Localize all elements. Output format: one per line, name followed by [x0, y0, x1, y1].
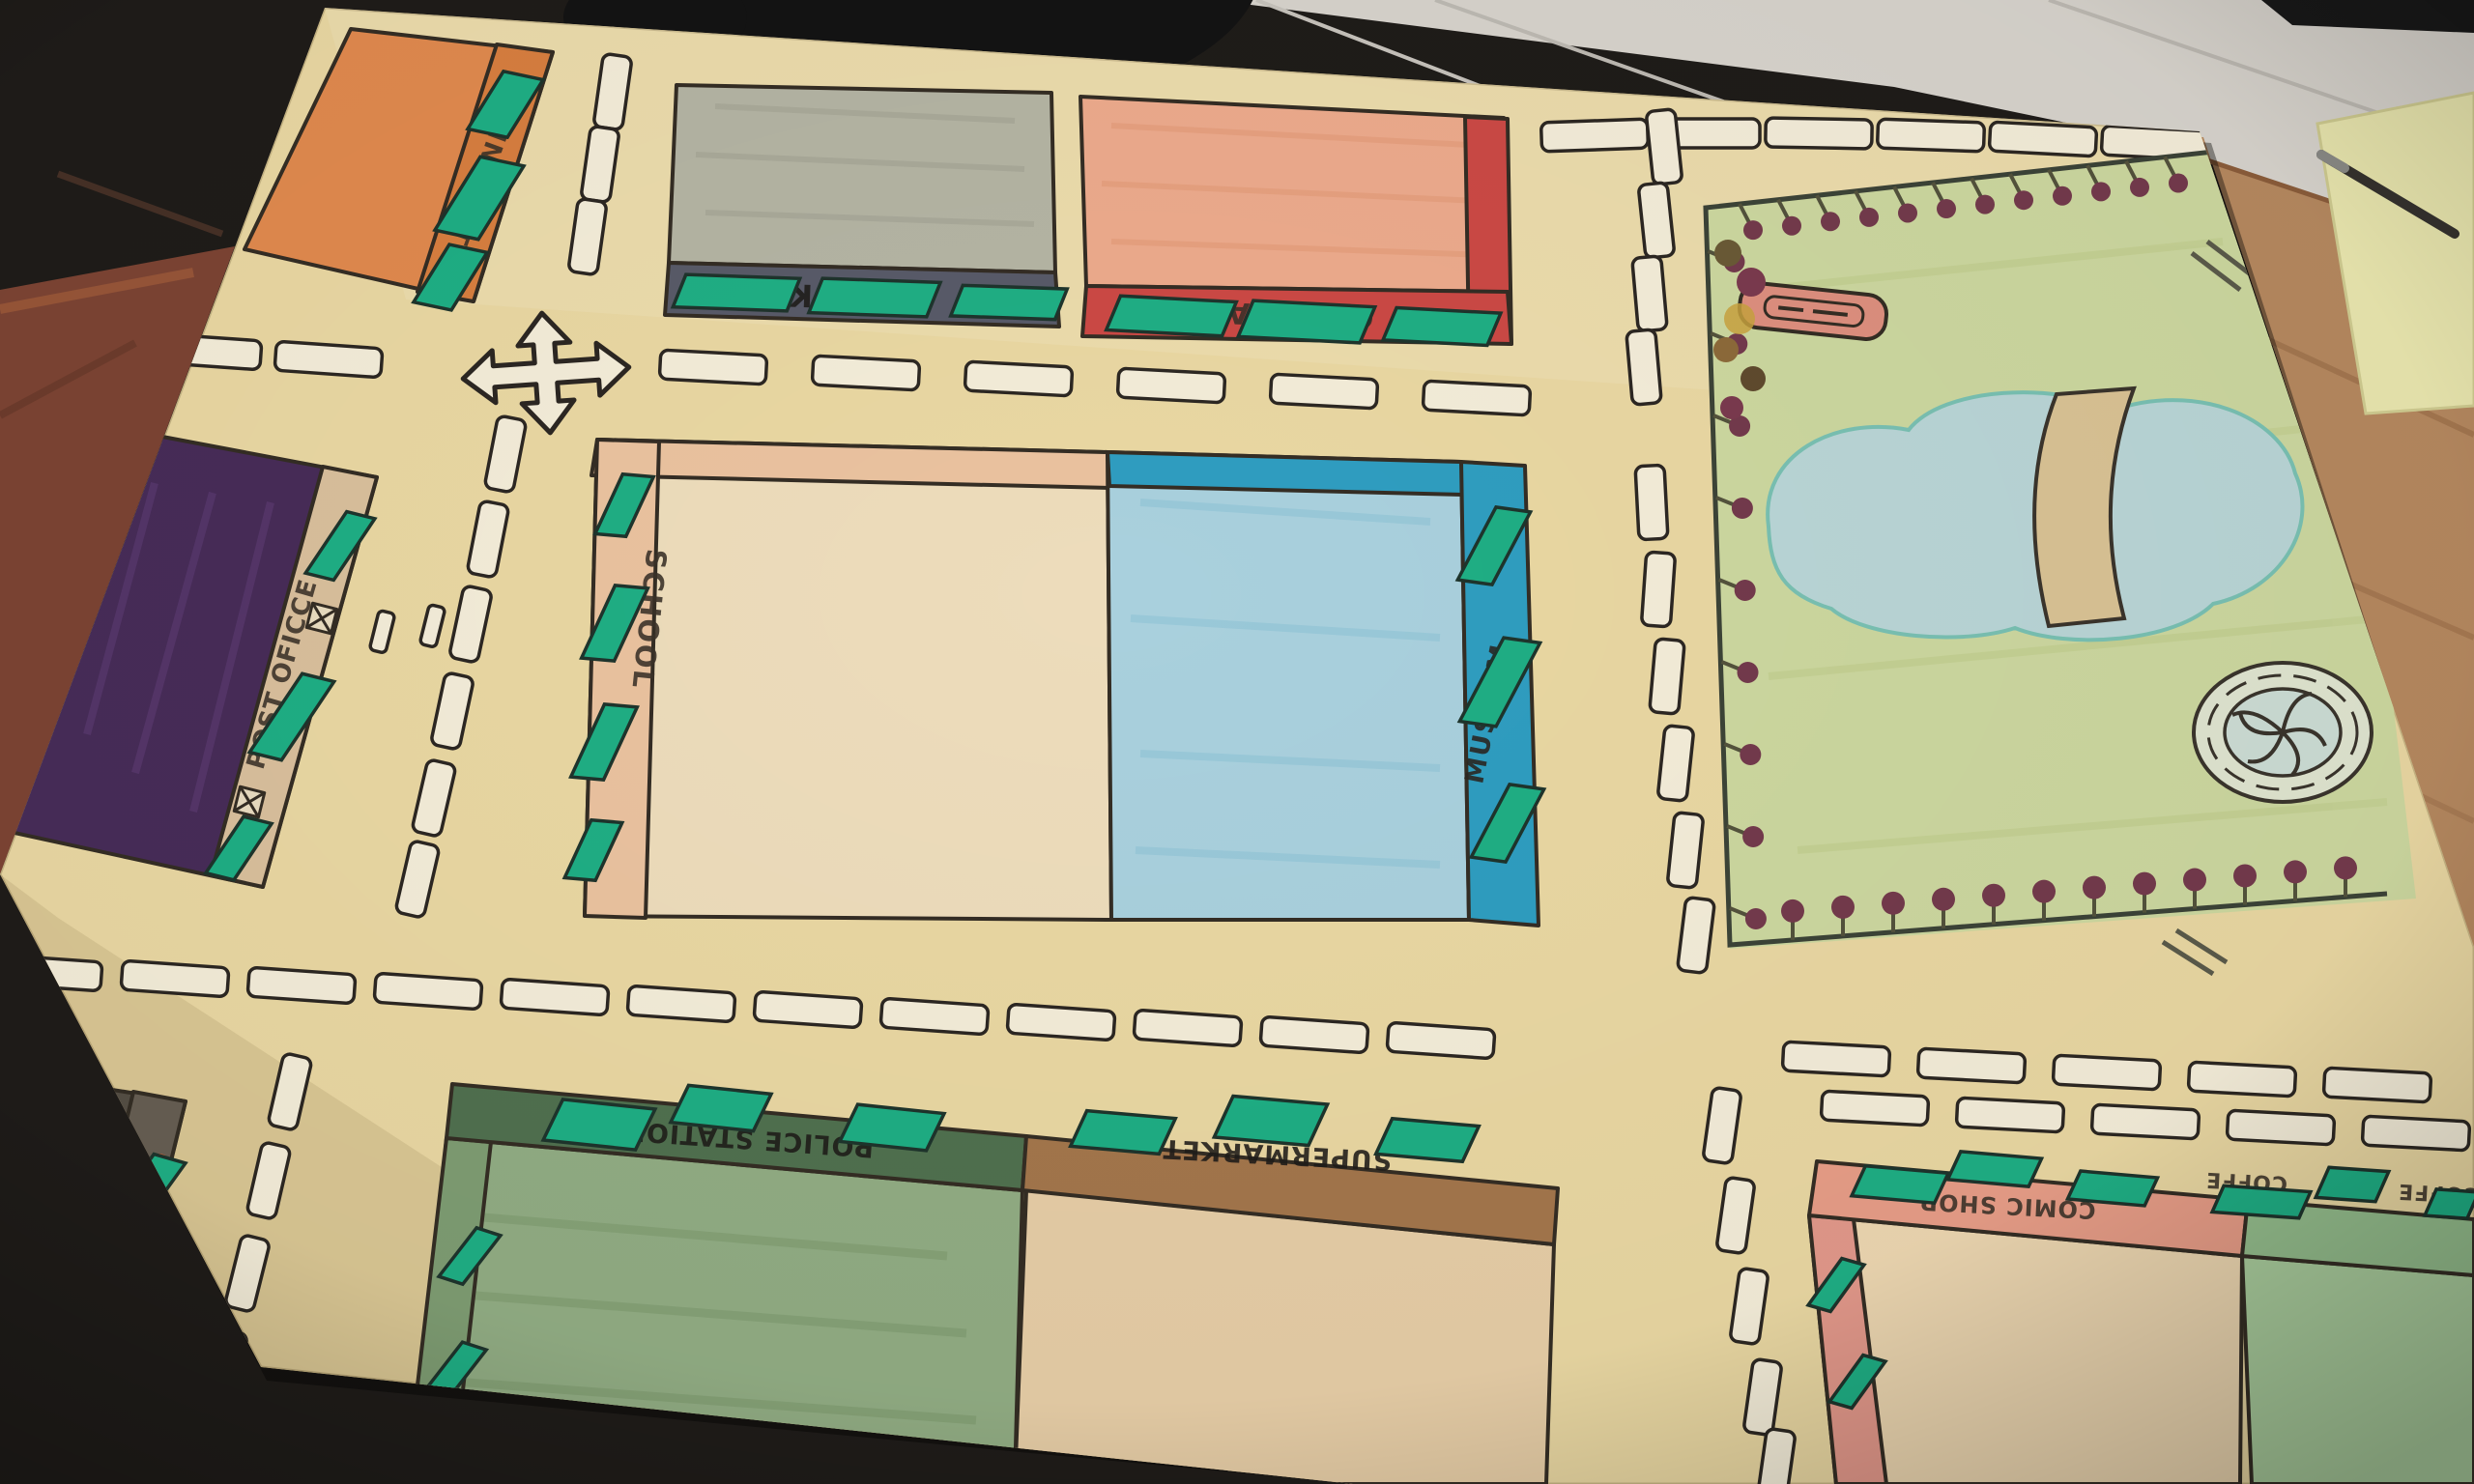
photo-of-hand-drawn-city-map: TRAIN STATION BANK CINEMA: [0, 0, 2474, 1484]
photo-vignette: [0, 0, 2474, 1484]
